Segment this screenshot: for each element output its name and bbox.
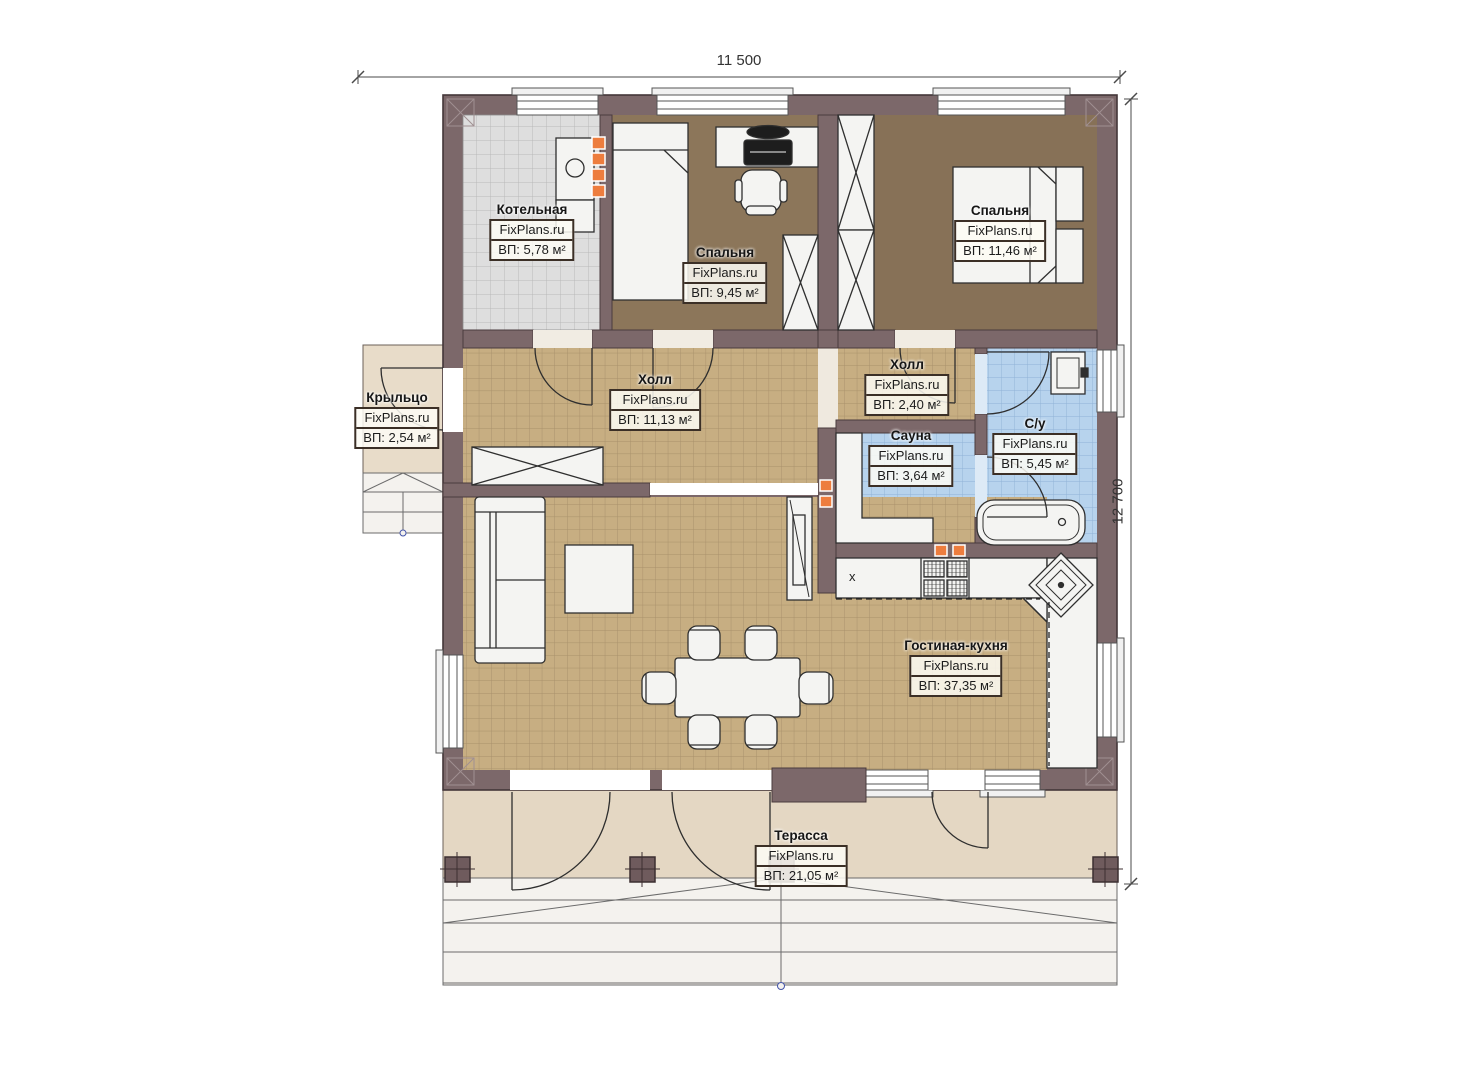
room-name: Спальня: [682, 245, 767, 260]
room-name: Холл: [864, 357, 949, 372]
room-label-gostinaya: Гостиная-кухня FixPlans.ru ВП: 37,35 м²: [904, 638, 1007, 697]
room-name: С/у: [992, 416, 1077, 431]
watermark: FixPlans.ru: [611, 391, 699, 411]
room-name: Котельная: [489, 202, 574, 217]
bathroom-sink-icon: [1051, 352, 1088, 394]
room-area: ВП: 5,45 м²: [994, 455, 1075, 473]
room-name: Сауна: [868, 428, 953, 443]
room-area: ВП: 21,05 м²: [757, 867, 846, 885]
room-area: ВП: 11,13 м²: [611, 411, 699, 429]
terrace-steps: [443, 878, 1117, 990]
sofa-icon: [475, 497, 545, 663]
bottom-wall-pier: [772, 768, 866, 802]
single-bed-icon: [613, 123, 688, 300]
room-name: Гостиная-кухня: [904, 638, 1007, 653]
room-info-box: FixPlans.ru ВП: 21,05 м²: [755, 845, 848, 887]
bathtub-icon: [977, 500, 1085, 545]
hall-closet-icon: [472, 447, 603, 485]
room-area: ВП: 2,40 м²: [866, 396, 947, 414]
room-info-box: FixPlans.ru ВП: 9,45 м²: [682, 262, 767, 304]
kitchen-sink-marker: х: [849, 569, 856, 584]
watermark: FixPlans.ru: [356, 409, 437, 429]
room-info-box: FixPlans.ru ВП: 11,46 м²: [954, 220, 1046, 262]
room-area: ВП: 11,46 м²: [956, 242, 1044, 260]
watermark: FixPlans.ru: [491, 221, 572, 241]
floor-plan-page: 11 500 12 700 х Котельная FixPlans.ru ВП…: [0, 0, 1473, 1080]
desk-icon: [716, 126, 818, 168]
stove-icon: [921, 558, 969, 598]
watermark: FixPlans.ru: [866, 376, 947, 396]
room-label-kotelnaya: Котельная FixPlans.ru ВП: 5,78 м²: [489, 202, 574, 261]
room-label-terassa: Терасса FixPlans.ru ВП: 21,05 м²: [755, 828, 848, 887]
watermark: FixPlans.ru: [870, 447, 951, 467]
hall-living-opening: [650, 483, 818, 495]
room-info-box: FixPlans.ru ВП: 11,13 м²: [609, 389, 701, 431]
room-info-box: FixPlans.ru ВП: 37,35 м²: [910, 655, 1003, 697]
room-label-holl-2: Холл FixPlans.ru ВП: 2,40 м²: [864, 357, 949, 416]
dimension-width-label: 11 500: [717, 52, 762, 69]
room-info-box: FixPlans.ru ВП: 5,78 м²: [489, 219, 574, 261]
room-info-box: FixPlans.ru ВП: 2,40 м²: [864, 374, 949, 416]
room-name: Холл: [609, 372, 701, 387]
room-label-spalnya-2: Спальня FixPlans.ru ВП: 11,46 м²: [954, 203, 1046, 262]
watermark: FixPlans.ru: [684, 264, 765, 284]
room-info-box: FixPlans.ru ВП: 5,45 м²: [992, 433, 1077, 475]
room-area: ВП: 5,78 м²: [491, 241, 572, 259]
room-info-box: FixPlans.ru ВП: 3,64 м²: [868, 445, 953, 487]
room-label-holl: Холл FixPlans.ru ВП: 11,13 м²: [609, 372, 701, 431]
dimension-height-label: 12 700: [1109, 479, 1126, 525]
porch-steps: [363, 473, 443, 536]
room-label-su: С/у FixPlans.ru ВП: 5,45 м²: [992, 416, 1077, 475]
floor-plan-canvas: [0, 0, 1473, 1080]
tv-stand-icon: [787, 497, 812, 600]
dining-table-icon: [675, 658, 800, 717]
room-label-sauna: Сауна FixPlans.ru ВП: 3,64 м²: [868, 428, 953, 487]
room-name: Крыльцо: [354, 390, 439, 405]
watermark: FixPlans.ru: [994, 435, 1075, 455]
room-label-krylco: Крыльцо FixPlans.ru ВП: 2,54 м²: [354, 390, 439, 449]
watermark: FixPlans.ru: [912, 657, 1001, 677]
room-area: ВП: 9,45 м²: [684, 284, 765, 302]
room-area: ВП: 37,35 м²: [912, 677, 1001, 695]
room-label-spalnya-1: Спальня FixPlans.ru ВП: 9,45 м²: [682, 245, 767, 304]
wardrobe-icon: [838, 115, 874, 330]
watermark: FixPlans.ru: [956, 222, 1044, 242]
watermark: FixPlans.ru: [757, 847, 846, 867]
wardrobe-icon: [783, 235, 818, 330]
coffee-table-icon: [565, 545, 633, 613]
room-info-box: FixPlans.ru ВП: 2,54 м²: [354, 407, 439, 449]
room-name: Терасса: [755, 828, 848, 843]
room-area: ВП: 3,64 м²: [870, 467, 951, 485]
room-name: Спальня: [954, 203, 1046, 218]
room-area: ВП: 2,54 м²: [356, 429, 437, 447]
